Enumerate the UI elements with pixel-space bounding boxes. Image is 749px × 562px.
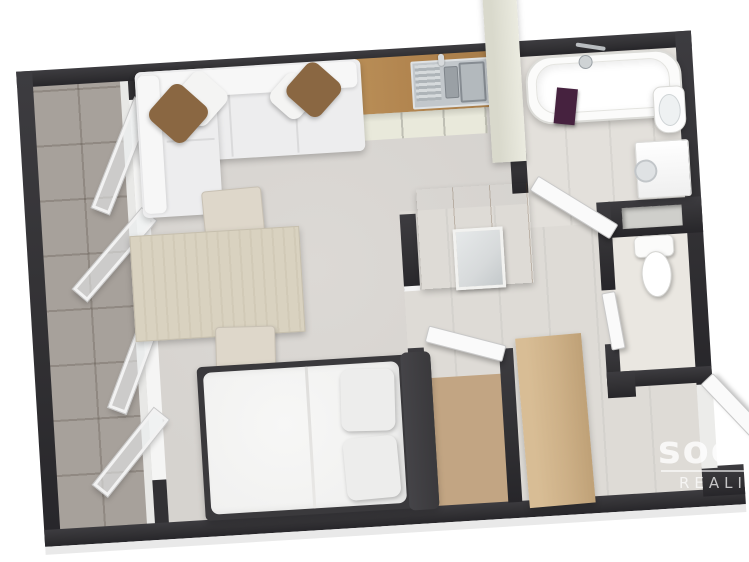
sink-drainboard xyxy=(414,64,441,101)
wc-niche-inset xyxy=(622,204,683,229)
sink-faucet xyxy=(438,54,445,66)
sink-basin-large xyxy=(458,61,486,103)
wardrobe-mirror xyxy=(453,226,507,290)
watermark-tagline-text: REALITY xyxy=(679,474,749,492)
wall-stub-cap xyxy=(404,286,420,292)
sink-basin-small xyxy=(444,66,460,99)
bath-towel xyxy=(554,87,578,125)
apartment-3d-floor-plan xyxy=(0,0,749,562)
bed-pillow-2 xyxy=(342,434,402,501)
wc-wall-bottom-corner xyxy=(607,371,637,399)
dining-table xyxy=(129,226,305,342)
watermark-brand-text: socco xyxy=(658,428,749,472)
watermark-divider-line xyxy=(661,470,749,472)
closet-floor xyxy=(426,374,513,509)
window-wall-stub-bottom xyxy=(152,479,169,524)
bed-pillow-1 xyxy=(340,368,396,431)
floor-plan-scene: socco REALITY xyxy=(0,0,749,562)
